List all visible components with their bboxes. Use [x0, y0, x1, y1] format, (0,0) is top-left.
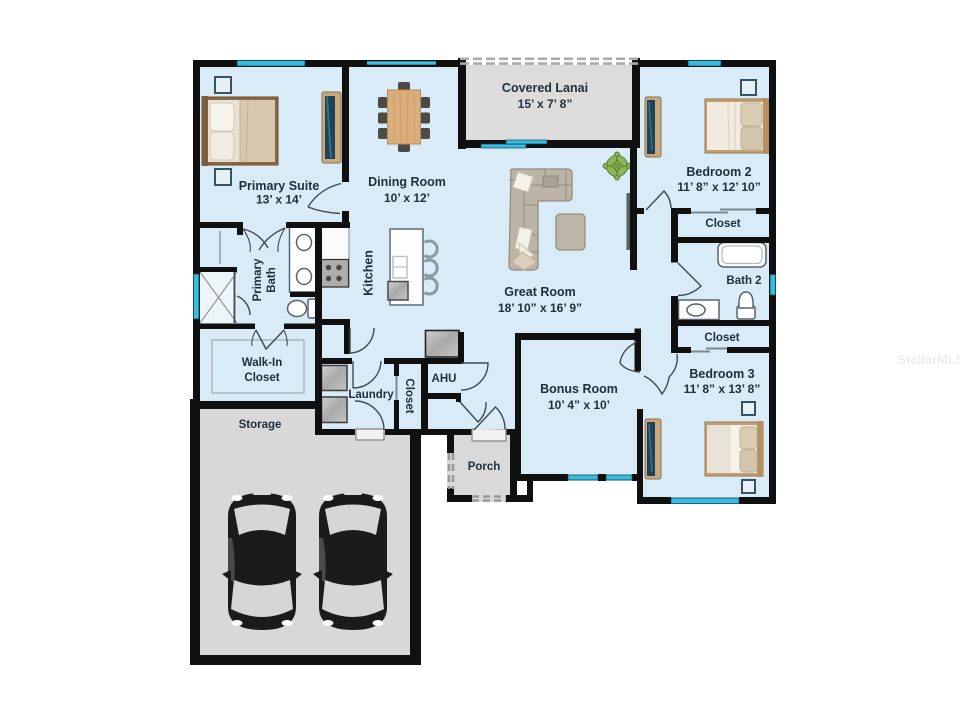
svg-text:13’ x 14’: 13’ x 14’	[256, 193, 302, 207]
svg-text:Closet: Closet	[704, 332, 739, 344]
svg-text:Bedroom 2: Bedroom 2	[686, 165, 751, 179]
svg-text:Bath: Bath	[266, 267, 278, 293]
svg-text:Storage: Storage	[239, 419, 282, 431]
svg-text:10’ 4” x 10’: 10’ 4” x 10’	[548, 398, 610, 412]
svg-text:Closet: Closet	[403, 378, 415, 413]
svg-text:Kitchen: Kitchen	[361, 250, 375, 296]
svg-text:Laundry: Laundry	[348, 389, 394, 401]
svg-text:18’ 10” x 16’ 9”: 18’ 10” x 16’ 9”	[498, 301, 582, 315]
svg-text:Primary: Primary	[252, 258, 264, 301]
svg-text:Porch: Porch	[468, 461, 501, 473]
svg-text:Great Room: Great Room	[504, 285, 576, 299]
svg-text:Bath 2: Bath 2	[726, 275, 761, 287]
svg-text:11’ 8” x 13’ 8”: 11’ 8” x 13’ 8”	[684, 382, 761, 396]
svg-text:Bonus Room: Bonus Room	[540, 382, 618, 396]
svg-text:10’ x 12’: 10’ x 12’	[384, 191, 430, 205]
svg-text:AHU: AHU	[432, 373, 457, 385]
svg-text:Bedroom 3: Bedroom 3	[689, 367, 754, 381]
svg-text:Dining Room: Dining Room	[368, 175, 446, 189]
svg-text:StellarMLS: StellarMLS	[897, 352, 960, 367]
svg-text:Primary Suite: Primary Suite	[239, 179, 320, 193]
svg-text:Walk-In: Walk-In	[242, 357, 282, 369]
svg-text:Closet: Closet	[244, 372, 279, 384]
svg-text:11’ 8” x 12’ 10”: 11’ 8” x 12’ 10”	[677, 180, 760, 194]
svg-text:Covered Lanai: Covered Lanai	[502, 81, 588, 95]
svg-text:Closet: Closet	[705, 218, 740, 230]
svg-text:15’ x 7’ 8”: 15’ x 7’ 8”	[518, 97, 573, 111]
